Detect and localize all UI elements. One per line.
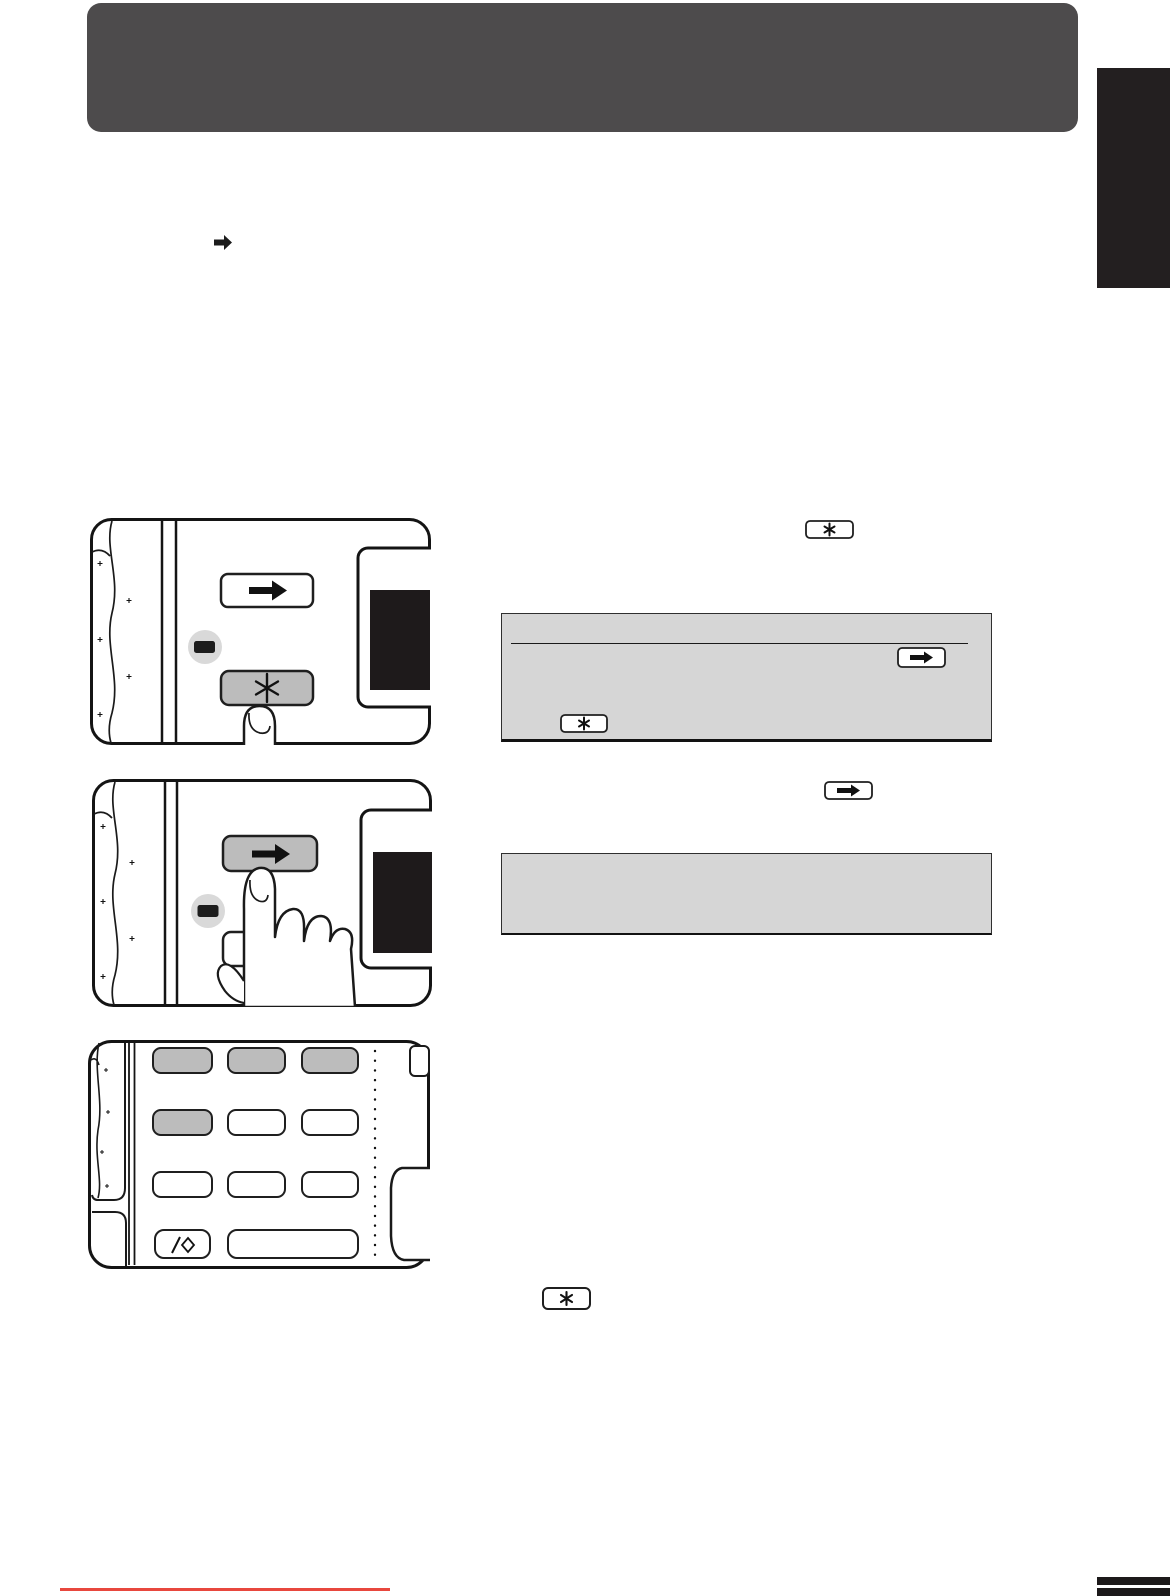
pressing-fingertip — [244, 706, 275, 745]
keypad-key-r2c3 — [302, 1110, 358, 1135]
note-box-1 — [501, 613, 992, 742]
diagram-panel-step3-keypad — [88, 1040, 430, 1269]
keypad-key-r1c2-highlighted — [228, 1048, 285, 1073]
chapter-header-banner — [87, 3, 1078, 132]
note-box-divider-line — [511, 643, 968, 644]
note-asterisk-key-icon — [560, 714, 608, 733]
keypad-key-r1c1-highlighted — [153, 1048, 212, 1073]
diagram-panel-step2 — [92, 779, 432, 1007]
keypad-wide-key — [228, 1230, 358, 1258]
footer-index-bar-1 — [1097, 1577, 1170, 1585]
callout-arrow-key-step2 — [824, 781, 873, 800]
keypad-key-r1c3-highlighted — [302, 1048, 358, 1073]
display-screen — [373, 852, 432, 953]
keypad-key-r3c1 — [153, 1172, 212, 1197]
arrow-right-icon — [214, 235, 232, 250]
clipped-side-key — [391, 1168, 430, 1260]
keypad-key-r3c3 — [302, 1172, 358, 1197]
keypad-key-r2c2 — [228, 1110, 285, 1135]
manual-page — [0, 0, 1170, 1596]
note-arrow-key-icon — [897, 647, 946, 668]
chapter-side-tab — [1097, 68, 1170, 288]
footer-index-bar-2 — [1097, 1588, 1170, 1596]
inline-arrow-right-icon — [214, 235, 233, 250]
keypad-key-r3c2 — [228, 1172, 285, 1197]
footer-red-rule — [60, 1588, 390, 1591]
diagram-panel-step1 — [90, 518, 431, 745]
keypad-key-r2c1-highlighted — [153, 1110, 212, 1135]
led-indicator-icon — [198, 905, 219, 917]
led-indicator-icon — [194, 641, 215, 653]
callout-asterisk-key-step3 — [542, 1287, 591, 1310]
note-box-2 — [501, 853, 992, 935]
display-screen — [370, 590, 430, 690]
callout-asterisk-key-step1 — [805, 520, 854, 539]
clipped-corner-key — [410, 1046, 429, 1076]
